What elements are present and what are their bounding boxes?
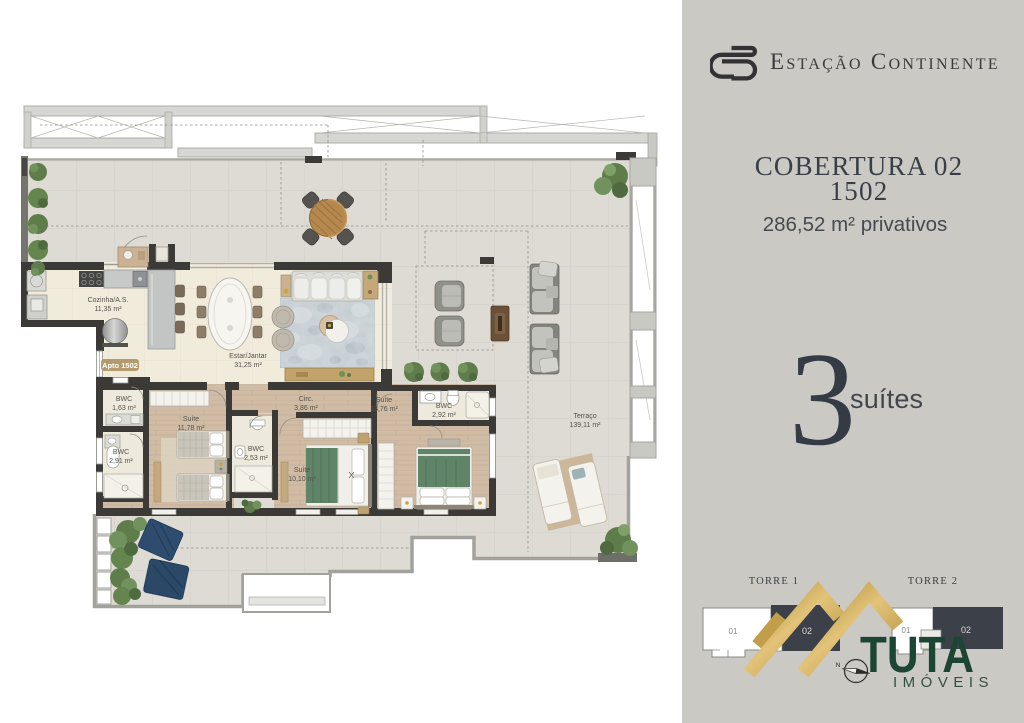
svg-text:2,92 m²: 2,92 m² <box>432 412 456 419</box>
svg-text:139,11 m²: 139,11 m² <box>570 422 602 429</box>
svg-text:1,63 m²: 1,63 m² <box>112 405 136 412</box>
svg-text:Suíte: Suíte <box>183 416 199 423</box>
svg-text:11,78 m²: 11,78 m² <box>177 425 205 432</box>
svg-text:Circ.: Circ. <box>299 396 313 403</box>
svg-text:N: N <box>836 662 841 669</box>
svg-text:BWC: BWC <box>436 403 452 410</box>
svg-text:31,25 m²: 31,25 m² <box>234 362 262 369</box>
svg-text:BWC: BWC <box>116 396 132 403</box>
svg-text:2,53 m²: 2,53 m² <box>244 455 268 462</box>
svg-text:BWC: BWC <box>113 449 129 456</box>
svg-text:11,35 m²: 11,35 m² <box>94 306 122 313</box>
svg-text:10,10 m²: 10,10 m² <box>288 476 316 483</box>
svg-text:02: 02 <box>802 626 812 636</box>
svg-text:Terraço: Terraço <box>573 413 596 420</box>
svg-text:3,86 m²: 3,86 m² <box>294 405 318 412</box>
svg-text:2,91 m²: 2,91 m² <box>109 458 133 465</box>
svg-text:Cozinha/A.S.: Cozinha/A.S. <box>88 297 129 304</box>
svg-text:Apto 1502: Apto 1502 <box>102 361 138 370</box>
svg-text:Suíte: Suíte <box>376 397 392 404</box>
svg-text:Estar/Jantar: Estar/Jantar <box>229 353 267 360</box>
svg-text:Suíte: Suíte <box>294 467 310 474</box>
svg-text:01: 01 <box>729 627 738 636</box>
svg-text:BWC: BWC <box>248 446 264 453</box>
svg-text:13,76 m²: 13,76 m² <box>370 406 398 413</box>
